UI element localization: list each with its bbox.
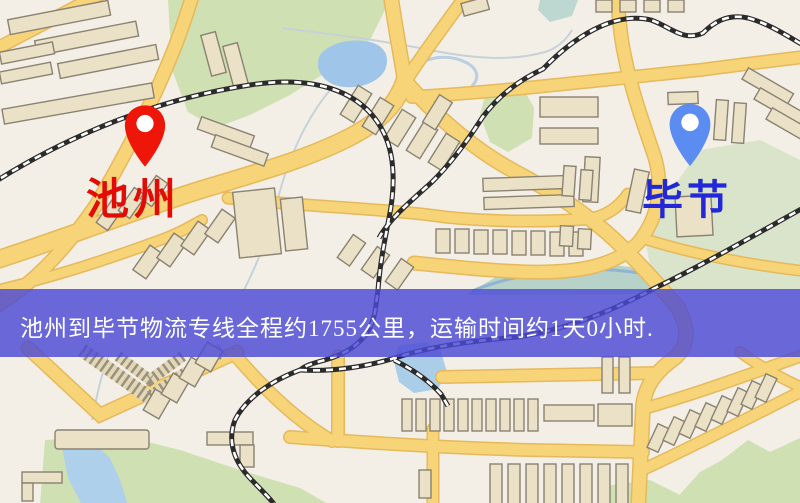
destination-pin-icon xyxy=(666,102,714,168)
info-banner: 池州到毕节物流专线全程约1755公里，运输时间约1天0小时. xyxy=(0,289,800,357)
map-image xyxy=(0,0,800,503)
origin-label: 池州 xyxy=(86,179,180,222)
destination-label: 毕节 xyxy=(642,180,732,221)
origin-pin-icon xyxy=(122,103,168,169)
logistics-route-map: 池州 毕节 池州到毕节物流专线全程约1755公里，运输时间约1天0小时. xyxy=(0,0,800,503)
banner-text: 池州到毕节物流专线全程约1755公里，运输时间约1天0小时. xyxy=(0,303,654,343)
